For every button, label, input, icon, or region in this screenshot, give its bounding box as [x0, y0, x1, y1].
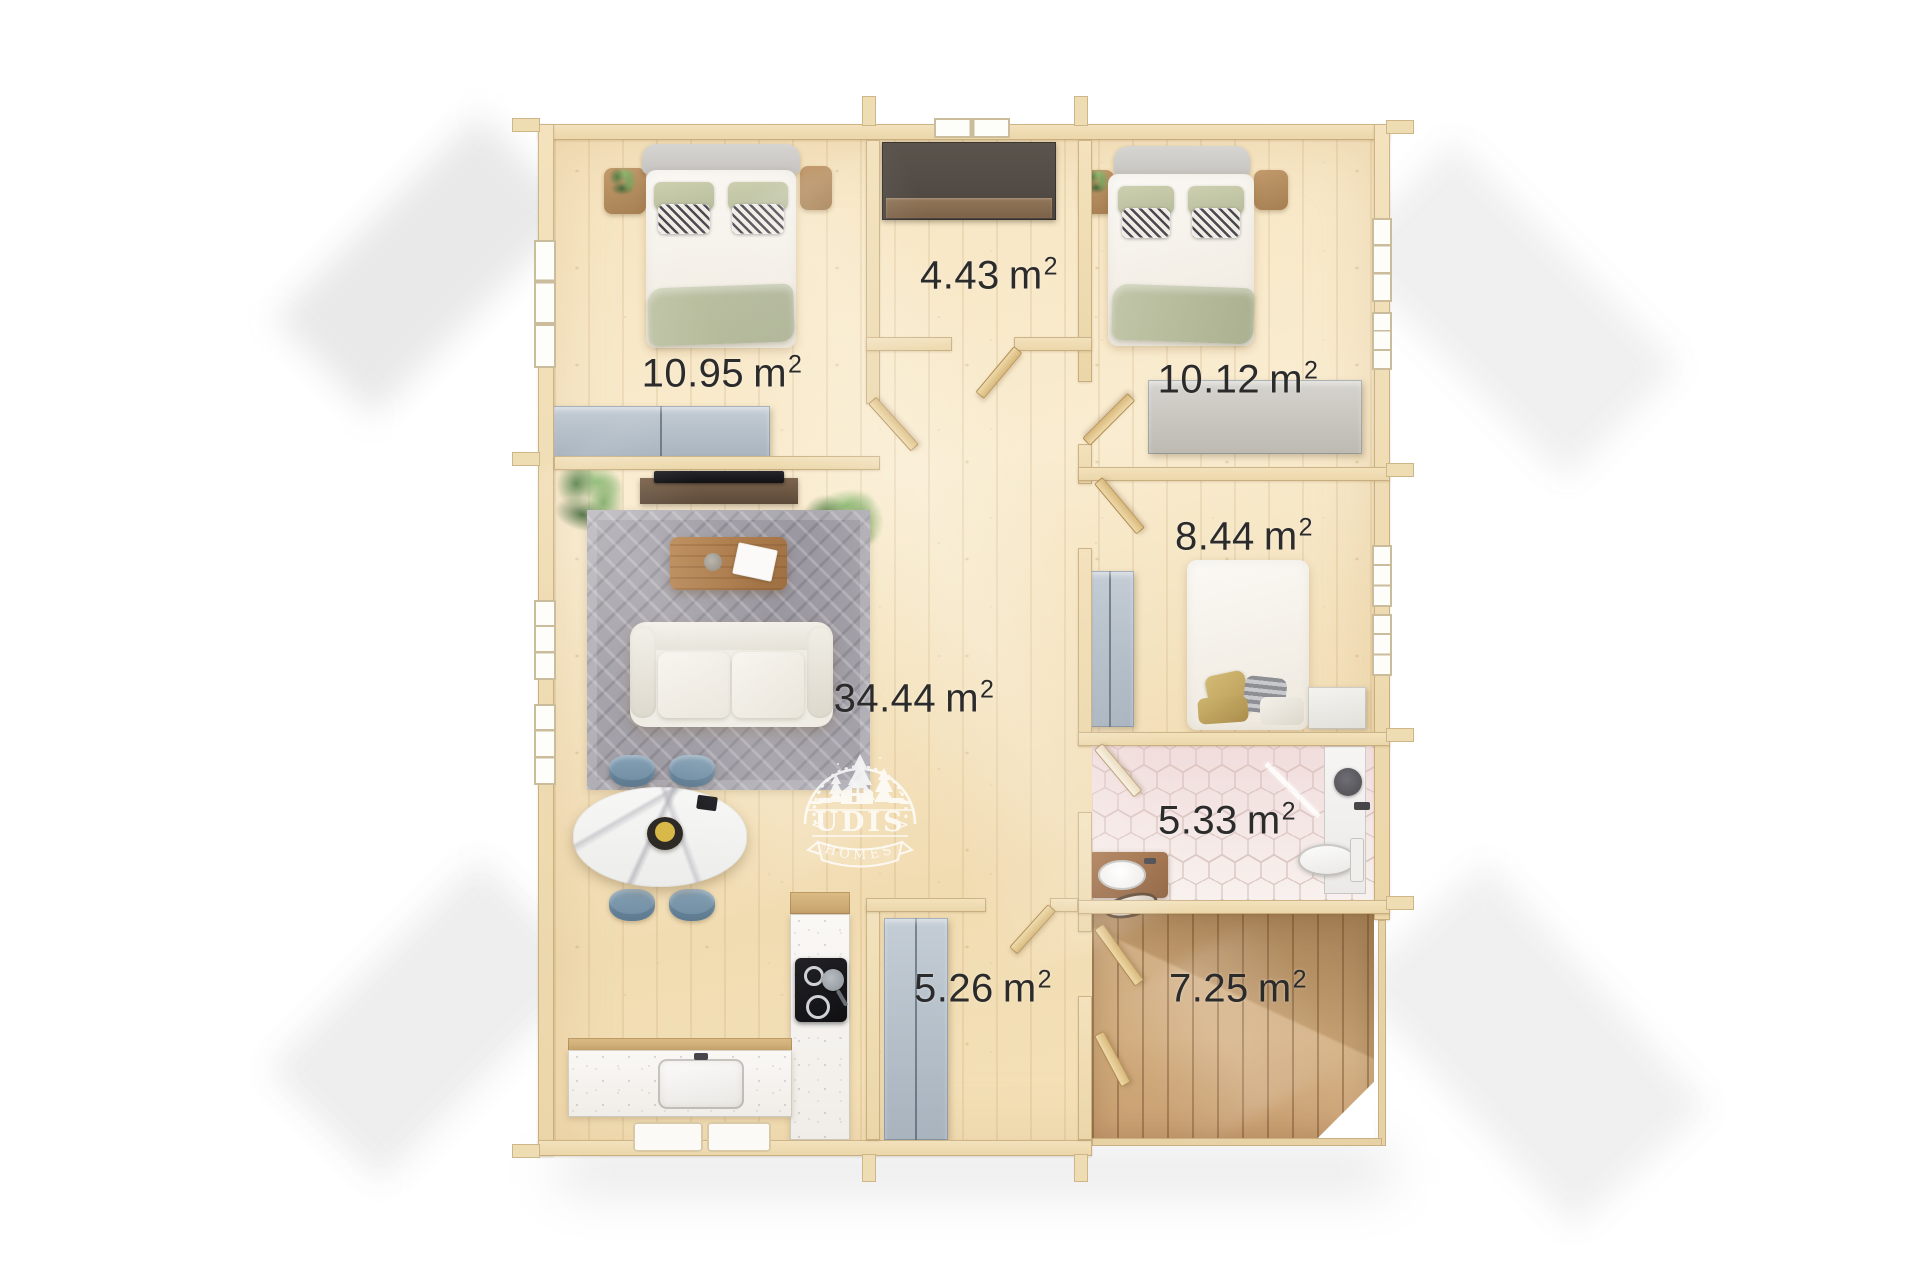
area-label-living-kitchen: 34.44m2 — [834, 678, 995, 719]
area-unit: m — [945, 677, 979, 721]
log-end — [1074, 1154, 1088, 1182]
window — [1372, 545, 1392, 607]
area-unit-exponent: 2 — [1304, 357, 1318, 385]
log-end — [512, 452, 540, 466]
area-unit-exponent: 2 — [1282, 798, 1296, 826]
window — [534, 704, 556, 785]
area-value: 7.25 — [1169, 967, 1249, 1011]
area-label-hallway-top: 4.43m2 — [920, 255, 1058, 296]
area-unit-exponent: 2 — [1044, 253, 1058, 281]
area-value: 5.33 — [1158, 799, 1238, 843]
window — [1372, 614, 1392, 676]
logo-forest-scene — [810, 754, 910, 804]
exterior-shadow — [1353, 862, 1708, 1228]
wall-interior — [866, 904, 880, 1140]
doormat — [707, 1122, 771, 1152]
area-unit-exponent: 2 — [1293, 966, 1307, 994]
area-unit: m — [1258, 967, 1292, 1011]
area-label-terrace: 7.25m2 — [1169, 968, 1307, 1009]
window — [934, 118, 1010, 138]
exterior-shadow — [274, 113, 578, 417]
area-value: 10.95 — [642, 352, 745, 396]
area-value: 10.12 — [1158, 358, 1261, 402]
area-value: 8.44 — [1175, 515, 1255, 559]
area-unit-exponent: 2 — [980, 676, 994, 704]
log-end — [1386, 463, 1414, 477]
doormat — [633, 1122, 703, 1152]
terrace-edge-bottom — [1092, 1138, 1382, 1146]
area-label-bedroom-top-right: 10.12m2 — [1158, 359, 1319, 400]
area-label-bathroom: 5.33m2 — [1158, 800, 1296, 841]
log-end — [862, 1154, 876, 1182]
area-value: 5.26 — [914, 967, 994, 1011]
area-label-bedroom-small: 8.44m2 — [1175, 516, 1313, 557]
area-unit-exponent: 2 — [1299, 514, 1313, 542]
logo-banner: HOMES — [808, 842, 912, 867]
wall-interior — [1078, 467, 1390, 481]
log-end — [1386, 120, 1414, 134]
log-end — [1074, 96, 1088, 126]
log-end — [512, 118, 540, 132]
logo-chevron-right: > — [895, 815, 909, 835]
log-end — [512, 1144, 540, 1158]
window — [1372, 218, 1392, 302]
area-value: 34.44 — [834, 677, 937, 721]
area-unit: m — [1009, 254, 1043, 298]
area-unit-exponent: 2 — [788, 351, 802, 379]
area-unit: m — [753, 352, 787, 396]
area-label-entrance-hall: 5.26m2 — [914, 968, 1052, 1009]
terrace-rail-right — [1378, 920, 1386, 1146]
floorplan-scene: < UDIS > HOMES 10.95m2 4.43m2 10.12m2 8.… — [0, 0, 1920, 1280]
window — [534, 240, 556, 368]
terrace-corner-highlight — [1314, 1080, 1374, 1140]
window — [1372, 312, 1392, 370]
udis-homes-watermark: < UDIS > HOMES — [788, 740, 932, 876]
log-end — [862, 96, 876, 126]
logo-brand: UDIS — [814, 807, 905, 838]
wall-interior — [1078, 996, 1092, 1140]
area-unit-exponent: 2 — [1038, 966, 1052, 994]
wall-interior — [866, 898, 986, 912]
area-unit: m — [1264, 515, 1298, 559]
wall-exterior-bottom — [538, 1140, 1092, 1156]
log-end — [1386, 896, 1414, 910]
building-drop-shadow — [560, 1150, 1390, 1190]
exterior-shadow — [1340, 140, 1679, 479]
area-label-bedroom-top-left: 10.95m2 — [642, 353, 803, 394]
area-value: 4.43 — [920, 254, 1000, 298]
area-unit: m — [1247, 799, 1281, 843]
wall-interior — [1014, 337, 1092, 351]
log-end — [1386, 728, 1414, 742]
area-unit: m — [1269, 358, 1303, 402]
area-unit: m — [1003, 967, 1037, 1011]
